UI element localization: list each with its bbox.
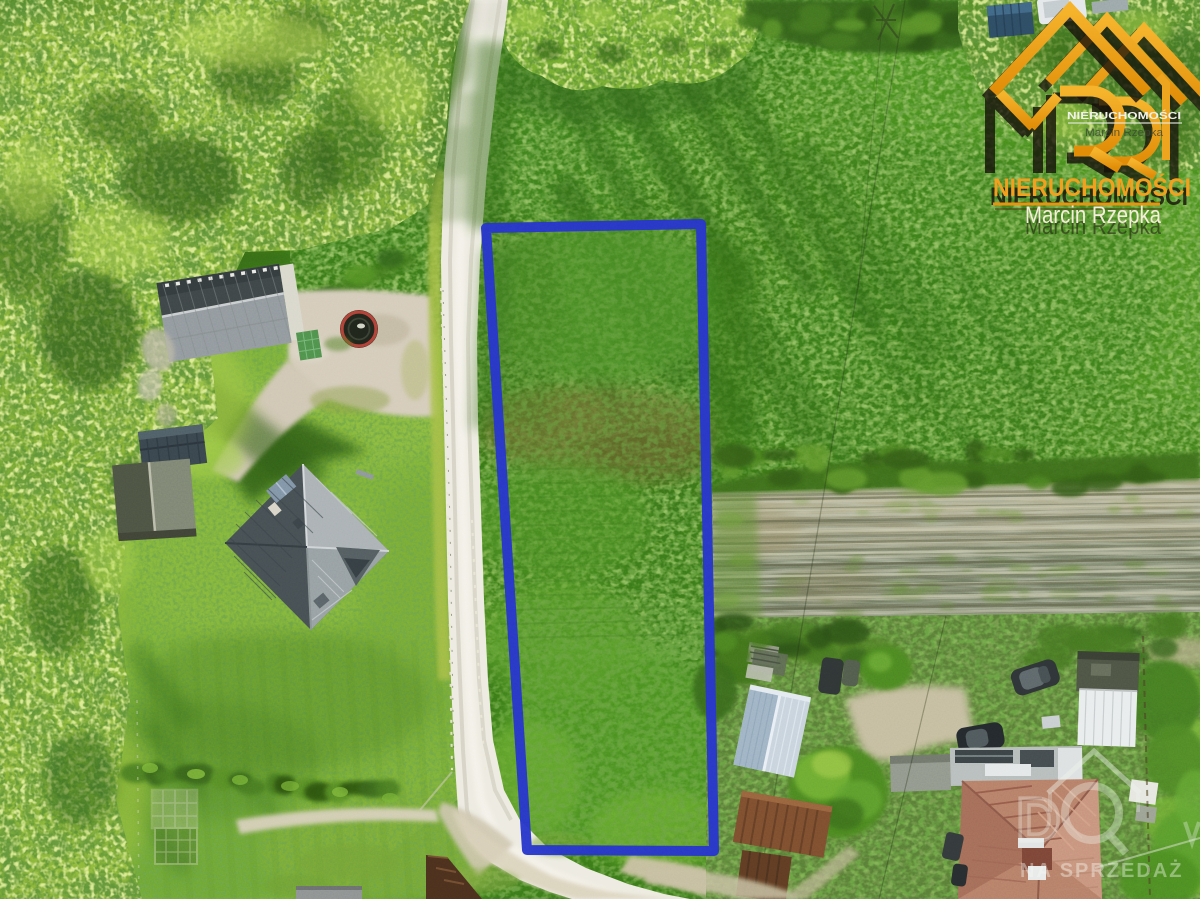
svg-text:Marcin Rzepka: Marcin Rzepka (1085, 127, 1164, 139)
svg-text:D: D (1016, 786, 1061, 855)
svg-text:NA SPRZEDAŻ: NA SPRZEDAŻ (1020, 859, 1183, 882)
svg-text:NIERUCHOMOŚCI: NIERUCHOMOŚCI (1067, 109, 1181, 122)
svg-text:Marcin Rzepka: Marcin Rzepka (1025, 202, 1162, 229)
svg-text:NIERUCHOMOŚCI: NIERUCHOMOŚCI (993, 172, 1191, 202)
